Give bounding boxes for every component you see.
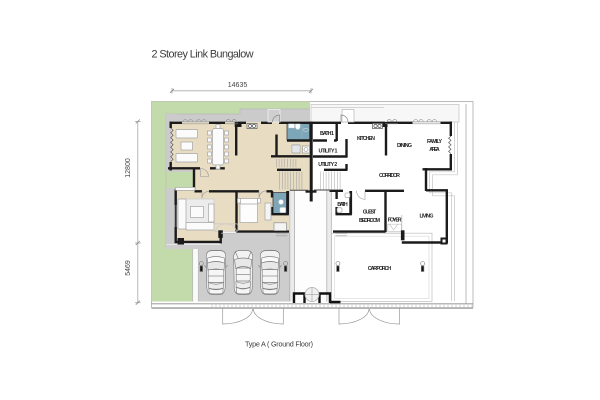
svg-text:2 Storey Link Bungalow: 2 Storey Link Bungalow <box>152 49 254 61</box>
svg-text:GUEST: GUEST <box>363 210 377 216</box>
svg-text:FOYER: FOYER <box>388 217 402 223</box>
svg-text:BATH 1: BATH 1 <box>320 131 334 137</box>
svg-text:LIVING: LIVING <box>420 214 434 220</box>
svg-text:DINING: DINING <box>397 143 412 149</box>
svg-text:Type A ( Ground Floor): Type A ( Ground Floor) <box>245 340 313 349</box>
svg-text:5469: 5469 <box>125 260 132 276</box>
svg-text:UTILITY 1: UTILITY 1 <box>319 149 338 155</box>
svg-text:AREA: AREA <box>429 147 440 153</box>
svg-text:14635: 14635 <box>228 82 248 89</box>
svg-text:CAR PORCH: CAR PORCH <box>368 266 392 272</box>
svg-text:FAMILY: FAMILY <box>427 139 442 145</box>
svg-text:BEDROOM: BEDROOM <box>359 218 381 224</box>
svg-text:CORRIDOR: CORRIDOR <box>379 173 400 179</box>
svg-text:BATH: BATH <box>337 202 348 208</box>
svg-text:UTILITY 2: UTILITY 2 <box>318 162 337 168</box>
svg-text:KITCHEN: KITCHEN <box>357 136 375 142</box>
svg-text:12800: 12800 <box>125 158 132 178</box>
